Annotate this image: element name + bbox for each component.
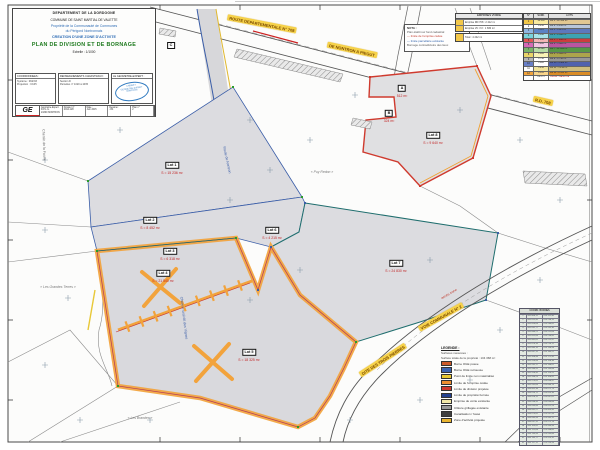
- commune-title: COMMUNE DE SAINT MARTIAL DE VALETTE: [13, 18, 155, 22]
- coords-line: Projection : CC45: [17, 83, 54, 86]
- parcel-label-box: B: [385, 110, 393, 117]
- borne-number: 28: [520, 425, 527, 428]
- borne-y: 474 251,08: [543, 331, 559, 334]
- cadastre-box-body: Section DParcelles n° 1020 à 1035: [59, 79, 108, 88]
- parcel-label-box: Lot 6: [265, 227, 279, 234]
- borne-y: 473 997,56: [543, 413, 559, 416]
- parcel-label-box: C: [167, 42, 175, 49]
- road-area-text: Emprise VC n°2 : 1 830 m²: [464, 27, 495, 30]
- borne-y: 474 280,62: [543, 323, 559, 326]
- lot-name-cell: Lot 2 - 8 230 m²: [549, 25, 590, 29]
- parcel-label: A512 m²: [397, 76, 408, 98]
- title-block-footer: GE Géomètre-Expert D.P.L.G.24300 NONTRON…: [15, 105, 155, 117]
- borne-y: 474 120,25: [543, 372, 559, 375]
- parcel-label-box: Lot 5: [242, 349, 256, 356]
- borne-y: 474 059,36: [543, 392, 559, 395]
- parcel-label: Lot 2S = 8 452 m²: [140, 208, 160, 230]
- footer-cell-line: Juin 2015: [87, 109, 107, 112]
- lot-surface-cell: 8 230: [534, 25, 549, 29]
- department-title: DEPARTEMENT DE LA DORDOGNE: [13, 11, 155, 15]
- lieu-dit-label: « Les Brandes »: [128, 416, 153, 420]
- borne-number: 20: [520, 392, 527, 395]
- borne-number: 5: [520, 331, 527, 334]
- borne-y: 474 009,90: [543, 409, 559, 412]
- parcel-area-text: 324 m²: [384, 119, 395, 123]
- owner-line-1: Propriété de la Communauté de Communes: [13, 24, 155, 28]
- parcel-label-box: Lot 2: [143, 217, 157, 224]
- lot-number-cell: 10: [524, 62, 534, 66]
- color-table-row: 84 895Lot 8 - 4 895 m²: [524, 52, 590, 57]
- borne-y: 473 972,78: [543, 421, 559, 424]
- borne-x: 495 944,55: [527, 368, 543, 371]
- borne-number: 18: [520, 384, 527, 387]
- borne-x: 495 897,15: [527, 351, 543, 354]
- parcel-area-text: S = 8 452 m²: [140, 226, 160, 230]
- legend-swatch: [441, 393, 452, 398]
- coords-box: COORDONNEES : Système : RGF93Projection …: [15, 73, 56, 104]
- road-area-text: Emprise RD 708 : 2 412 m²: [464, 21, 495, 24]
- parcel-label-box: Lot 8: [426, 132, 440, 139]
- col-number: N°: [524, 14, 534, 18]
- lot-number-cell: 8: [524, 53, 534, 57]
- borne-x: 495 932,17: [527, 364, 543, 367]
- lot-number-cell: 6: [524, 43, 534, 47]
- coordinate-row: 12495 920,83474 158,36: [520, 359, 559, 363]
- legend-swatch: [441, 418, 452, 423]
- parcel-area-text: S = 4 215 m²: [262, 236, 282, 240]
- lot-name-cell: TOTAL : 89 875 m²: [549, 76, 590, 80]
- coordinate-row: 14495 944,55474 133,68: [520, 367, 559, 371]
- coordinate-row: 32496 157,12473 910,98: [520, 441, 559, 445]
- coordinate-row: 31496 145,77473 923,32: [520, 436, 559, 440]
- lot-name-cell: Lot 8 - 4 895 m²: [549, 53, 590, 57]
- borne-number: 15: [520, 372, 527, 375]
- borne-y: 474 196,58: [543, 347, 559, 350]
- parcel-label: Lot 5S = 18 325 m²: [238, 340, 259, 362]
- borne-x: 495 920,83: [527, 360, 543, 363]
- legend-label: Emprise de voirie existante: [454, 399, 490, 403]
- legend-note-2: Surface totale de la propriété : 104 368…: [441, 356, 525, 360]
- title-block: DEPARTEMENT DE LA DORDOGNE COMMUNE DE SA…: [12, 8, 156, 117]
- borne-y: 473 923,32: [543, 437, 559, 440]
- color-table-row: 96 740Lot 9 - 6 740 m²: [524, 57, 590, 62]
- footer-cell: Dossier n°2014-128: [63, 106, 86, 116]
- color-table-row: 36 115Lot 3 - 6 115 m²: [524, 28, 590, 33]
- color-table-row: 711 020Lot 7 - 11 020 m²: [524, 47, 590, 52]
- borne-number: 32: [520, 442, 527, 445]
- color-swatch: [456, 26, 464, 31]
- borne-number: 21: [520, 396, 527, 399]
- legend-note-1: Surfaces mesurées :: [441, 351, 525, 355]
- parcel-color-table: N° SURF. LOTS 112 450Lot 1 - 12 450 m²28…: [523, 13, 591, 81]
- borne-x: 495 956,90: [527, 372, 543, 375]
- legend-title: LEGENDE :: [441, 346, 525, 350]
- coordinate-row: 22496 038,50474 034,68: [520, 400, 559, 404]
- parcel-label-box: Lot 3: [163, 248, 177, 255]
- legend-swatch: [441, 386, 452, 391]
- borne-x: 496 002,38: [527, 388, 543, 391]
- borne-x: 495 874,39: [527, 343, 543, 346]
- borne-number: 6: [520, 335, 527, 338]
- borne-y: 474 108,81: [543, 376, 559, 379]
- borne-y: 474 047,02: [543, 396, 559, 399]
- road-area-row: Emprise VC n°2 : 1 830 m²: [456, 25, 522, 31]
- coordinate-row: 13495 932,17474 146,02: [520, 363, 559, 367]
- col-lots: LOTS: [549, 14, 590, 18]
- surveyor-logo: GE: [16, 106, 40, 116]
- color-table-row: 115 210Lot 11 - 5 210 m²: [524, 66, 590, 71]
- coordinate-row: 10495 897,15474 183,22: [520, 350, 559, 354]
- lieu-dit-label: « Puy Redon »: [311, 170, 333, 174]
- legend-label: Limite de propriété bornée: [454, 393, 489, 397]
- borne-y: 474 096,47: [543, 380, 559, 383]
- parcel-label-box: Lot 7: [389, 260, 403, 267]
- note-line: Bornage contradictoire des lieux: [407, 43, 467, 47]
- lot-surface-cell: 5 480: [534, 43, 549, 47]
- borne-x: 495 812,45: [527, 319, 543, 322]
- lot-number-cell: 2: [524, 25, 534, 29]
- lot-surface-cell: 7 260: [534, 39, 549, 43]
- lieu-dit-label: « Les Grandes Terres »: [40, 285, 76, 289]
- lot-surface-cell: 89 875: [534, 76, 549, 80]
- legend-swatch: [441, 367, 452, 372]
- owner-line-2: du Périgord Nontronnais: [13, 29, 155, 33]
- cadastre-line: Parcelles n° 1020 à 1035: [60, 83, 107, 86]
- parcel-area-text: S = 15 236 m²: [161, 171, 182, 175]
- lot-number-cell: 5: [524, 39, 534, 43]
- borne-number: 13: [520, 364, 527, 367]
- parcel-label: B324 m²: [384, 101, 395, 123]
- borne-x: 496 038,50: [527, 401, 543, 404]
- borne-x: 496 085,96: [527, 417, 543, 420]
- legend-label: Canalisation / fossé: [454, 412, 480, 416]
- lot-surface-cell: 6 740: [534, 58, 549, 62]
- borne-number: 11: [520, 356, 527, 359]
- borne-number: 30: [520, 433, 527, 436]
- scale-label: Echelle : 1/1000: [13, 50, 155, 54]
- color-swatch: [456, 20, 464, 25]
- coordinate-row: 19496 002,38474 071,79: [520, 387, 559, 391]
- borne-x: 496 061,27: [527, 409, 543, 412]
- legend-label: Clôture grillagée existante: [454, 406, 489, 410]
- borne-y: 474 034,68: [543, 401, 559, 404]
- lot-name-cell: Lot 1 - 12 450 m²: [549, 20, 590, 24]
- color-table-row: 65 480Lot 6 - 5 480 m²: [524, 42, 590, 47]
- borne-number: 14: [520, 368, 527, 371]
- parcel-label: Lot 7S = 24 830 m²: [385, 251, 406, 273]
- footer-cell: Plan n°2: [131, 106, 154, 116]
- borne-x: 495 820,08: [527, 323, 543, 326]
- lot-name-cell: Lot 4 - 9 840 m²: [549, 34, 590, 38]
- parcel-area-text: S = 24 830 m²: [385, 269, 406, 273]
- coordinate-row: 3495 820,08474 280,62: [520, 322, 559, 326]
- borne-y: 474 236,85: [543, 335, 559, 338]
- borne-x: 495 806,12: [527, 315, 543, 318]
- legend-label: Limite de l'emprise cédée: [454, 381, 488, 385]
- lot-surface-cell: 3 980: [534, 62, 549, 66]
- lot-name-cell: Lot 7 - 11 020 m²: [549, 48, 590, 52]
- footer-cell: Géomètre-Expert D.P.L.G.24300 NONTRON: [40, 106, 63, 116]
- legend-item: Limite de division projetée: [441, 386, 525, 391]
- borne-x: 496 133,43: [527, 433, 543, 436]
- surveyor-box-header: LE GEOMETRE-EXPERT :: [112, 74, 152, 79]
- lot-number-cell: 3: [524, 29, 534, 33]
- coords-box-body: Système : RGF93Projection : CC45: [16, 79, 55, 88]
- borne-x: 496 121,08: [527, 429, 543, 432]
- borne-number: 19: [520, 388, 527, 391]
- legend-item: Clôture grillagée existante: [441, 405, 525, 410]
- legend-label: Point de limite non matérialisé: [454, 374, 494, 378]
- color-table-row: 128 655Lot 12 - 8 655 m²: [524, 71, 590, 76]
- legend-item: Limite de l'emprise cédée: [441, 380, 525, 385]
- lot-surface-cell: 12 450: [534, 20, 549, 24]
- lot-name-cell: Lot 3 - 6 115 m²: [549, 29, 590, 33]
- borne-number: 27: [520, 421, 527, 424]
- lot-number-cell: 11: [524, 67, 534, 71]
- col-surface: SURF.: [534, 14, 549, 18]
- borne-number: 16: [520, 376, 527, 379]
- parcel-label: Lot 8S = 9 640 m²: [423, 123, 443, 145]
- coordinate-row: 5495 840,21474 251,08: [520, 330, 559, 334]
- borne-y: 473 960,44: [543, 425, 559, 428]
- road-area-total: Total : 4 242 m²: [455, 33, 523, 42]
- coordinate-row: 28496 109,65473 960,44: [520, 424, 559, 428]
- color-swatch: [456, 34, 464, 41]
- road-area-text: Total : 4 242 m²: [464, 36, 482, 39]
- borne-number: 3: [520, 323, 527, 326]
- borne-number: 10: [520, 351, 527, 354]
- parcel-area-text: S = 9 640 m²: [423, 141, 443, 145]
- parcel-label: Lot 4S = 21 540 m²: [152, 261, 173, 283]
- legend-swatch: [441, 411, 452, 416]
- borne-y: 473 935,66: [543, 433, 559, 436]
- borne-number: 17: [520, 380, 527, 383]
- legend-label: Limite de division projetée: [454, 387, 489, 391]
- borne-y: 474 022,24: [543, 405, 559, 408]
- coordinate-row: 30496 133,43473 935,66: [520, 432, 559, 436]
- borne-number: 4: [520, 327, 527, 330]
- lot-surface-cell: 11 020: [534, 48, 549, 52]
- coordinate-row: 23496 049,84474 022,24: [520, 404, 559, 408]
- footer-cell-line: 2: [132, 109, 152, 112]
- legend-swatch: [441, 405, 452, 410]
- borne-y: 474 071,79: [543, 388, 559, 391]
- coordinate-row: 29496 121,08473 948,00: [520, 428, 559, 432]
- coordinate-row: 18495 991,06474 084,13: [520, 383, 559, 387]
- borne-number: 9: [520, 347, 527, 350]
- coordinate-row: 1495 806,12474 312,40: [520, 314, 559, 318]
- parcel-area-text: S = 18 325 m²: [238, 358, 259, 362]
- footer-cell: Dessiné :J.M.: [108, 106, 131, 116]
- footer-cell-line: 24300 NONTRON: [41, 112, 61, 115]
- coordinate-row: 11495 908,48474 171,90: [520, 355, 559, 359]
- coordinate-row: 8495 874,39474 210,11: [520, 342, 559, 346]
- lot-number-cell: 9: [524, 58, 534, 62]
- color-table-row: 89 875TOTAL : 89 875 m²: [524, 75, 590, 80]
- borne-y: 474 146,02: [543, 364, 559, 367]
- borne-x: 496 145,77: [527, 437, 543, 440]
- borne-x: 496 097,31: [527, 421, 543, 424]
- lot-name-cell: Lot 5 - 7 260 m²: [549, 39, 590, 43]
- lot-name-cell: Lot 11 - 5 210 m²: [549, 67, 590, 71]
- lot-name-cell: Lot 12 - 8 655 m²: [549, 72, 590, 76]
- color-table-row: 103 980Lot 10 - 3 980 m²: [524, 61, 590, 66]
- coordinate-row: 16495 968,24474 108,81: [520, 375, 559, 379]
- lot-number-cell: 12: [524, 72, 534, 76]
- parcel-area-text: S = 21 540 m²: [152, 279, 173, 283]
- parcel-label: C: [167, 33, 175, 51]
- parcel-label: Lot 1S = 15 236 m²: [161, 153, 182, 175]
- borne-number: 2: [520, 319, 527, 322]
- borne-y: 474 133,68: [543, 368, 559, 371]
- color-table-row: 112 450Lot 1 - 12 450 m²: [524, 19, 590, 24]
- legend-item: Point de limite non matérialisé: [441, 374, 525, 379]
- legend-swatch: [441, 374, 452, 379]
- borne-y: 474 222,47: [543, 339, 559, 342]
- coordinate-row: 26496 085,96473 985,12: [520, 416, 559, 420]
- lot-number-cell: 1: [524, 20, 534, 24]
- borne-number: 25: [520, 413, 527, 416]
- borne-y: 474 210,11: [543, 343, 559, 346]
- legend-item: Limite de propriété bornée: [441, 393, 525, 398]
- borne-x: 495 968,24: [527, 376, 543, 379]
- legend-item: Emprise de voirie existante: [441, 399, 525, 404]
- borne-y: 474 312,40: [543, 315, 559, 318]
- footer-cell-line: J.M.: [109, 109, 129, 112]
- cadastre-box: RENSEIGNEMENTS CADASTRAUX : Section DPar…: [58, 73, 109, 104]
- coordinate-row: 27496 097,31473 972,78: [520, 420, 559, 424]
- coordinate-row: 6495 852,64474 236,85: [520, 334, 559, 338]
- borne-y: 474 183,22: [543, 351, 559, 354]
- borne-number: 8: [520, 343, 527, 346]
- legend-item: Borne OGE posée: [441, 361, 525, 366]
- borne-number: 29: [520, 429, 527, 432]
- coordinate-row: 21496 026,15474 047,02: [520, 395, 559, 399]
- borne-x: 496 157,12: [527, 442, 543, 445]
- coordinate-row: 2495 812,45474 298,15: [520, 318, 559, 322]
- parcel-label-box: Lot 4: [156, 270, 170, 277]
- lot-surface-cell: 4 895: [534, 53, 549, 57]
- borne-x: 496 014,72: [527, 392, 543, 395]
- legend-label: Zone d'activité projetée: [454, 418, 485, 422]
- borne-x: 495 831,77: [527, 327, 543, 330]
- borne-number: 12: [520, 360, 527, 363]
- legend-item: Borne OGE retrouvée: [441, 367, 525, 372]
- borne-number: 23: [520, 405, 527, 408]
- coordinate-row: 9495 885,70474 196,58: [520, 346, 559, 350]
- lot-number-cell: 4: [524, 34, 534, 38]
- coordinate-row: 24496 061,27474 009,90: [520, 408, 559, 412]
- borne-y: 473 948,00: [543, 429, 559, 432]
- legend-label: Borne OGE retrouvée: [454, 368, 483, 372]
- lot-number-cell: [524, 76, 534, 80]
- coordinate-row: 20496 014,72474 059,36: [520, 391, 559, 395]
- borne-x: 495 991,06: [527, 384, 543, 387]
- borne-x: 495 852,64: [527, 335, 543, 338]
- borne-x: 495 908,48: [527, 356, 543, 359]
- coordinate-row: 4495 831,77474 265,30: [520, 326, 559, 330]
- lot-name-cell: Lot 9 - 6 740 m²: [549, 58, 590, 62]
- borne-x: 495 885,70: [527, 347, 543, 350]
- scanned-survey-plan: DEPARTEMENT DE LA DORDOGNE COMMUNE DE SA…: [0, 0, 600, 450]
- borne-x: 496 049,84: [527, 405, 543, 408]
- road-area-table: EMPRISES VOIRIE Emprise RD 708 : 2 412 m…: [455, 13, 523, 32]
- borne-number: 22: [520, 401, 527, 404]
- borne-y: 473 985,12: [543, 417, 559, 420]
- lot-surface-cell: 9 840: [534, 34, 549, 38]
- color-table-row: 28 230Lot 2 - 8 230 m²: [524, 24, 590, 29]
- borne-number: 26: [520, 417, 527, 420]
- legend-item: Zone d'activité projetée: [441, 418, 525, 423]
- project-title: CREATION D'UNE ZONE D'ACTIVITE: [13, 35, 155, 39]
- borne-x: 495 840,21: [527, 331, 543, 334]
- lot-number-cell: 7: [524, 48, 534, 52]
- borne-y: 473 910,98: [543, 442, 559, 445]
- coordinate-row: 7495 861,02474 222,47: [520, 338, 559, 342]
- legend-swatch: [441, 399, 452, 404]
- borne-y: 474 084,13: [543, 384, 559, 387]
- parcel-label: Lot 3S = 6 318 m²: [160, 239, 180, 261]
- coordinate-table: COORD. BORNES 1495 806,12474 312,402495 …: [519, 308, 560, 446]
- coordinate-row: 25496 073,62473 997,56: [520, 412, 559, 416]
- borne-x: 496 073,62: [527, 413, 543, 416]
- footer-cell-line: 2014-128: [64, 109, 84, 112]
- color-table-row: 49 840Lot 4 - 9 840 m²: [524, 33, 590, 38]
- borne-number: 31: [520, 437, 527, 440]
- legend: LEGENDE : Surfaces mesurées : Surface to…: [441, 346, 525, 423]
- borne-x: 495 861,02: [527, 339, 543, 342]
- parcel-label-box: A: [398, 85, 406, 92]
- borne-y: 474 171,90: [543, 356, 559, 359]
- borne-number: 24: [520, 409, 527, 412]
- borne-number: 1: [520, 315, 527, 318]
- parcel-area-text: 512 m²: [397, 94, 408, 98]
- surveyor-box: LE GEOMETRE-EXPERT : CABINETGEOMETRE-EXP…: [111, 73, 153, 104]
- parcel-label-box: Lot 1: [165, 162, 179, 169]
- legend-item: Canalisation / fossé: [441, 411, 525, 416]
- coordinate-row: 17495 979,61474 096,47: [520, 379, 559, 383]
- borne-number: 7: [520, 339, 527, 342]
- lot-name-cell: Lot 10 - 3 980 m²: [549, 62, 590, 66]
- surveyor-stamp: CABINETGEOMETRE-EXPERTNONTRON: [114, 80, 150, 104]
- borne-x: 496 026,15: [527, 396, 543, 399]
- lot-surface-cell: 5 210: [534, 67, 549, 71]
- borne-y: 474 298,15: [543, 319, 559, 322]
- borne-y: 474 265,30: [543, 327, 559, 330]
- parcel-label: Lot 6S = 4 215 m²: [262, 218, 282, 240]
- footer-cell: Date :Juin 2015: [86, 106, 109, 116]
- borne-x: 496 109,65: [527, 425, 543, 428]
- legend-swatch: [441, 361, 452, 366]
- plan-title: PLAN DE DIVISION ET DE BORNAGE: [13, 42, 155, 48]
- borne-x: 495 979,61: [527, 380, 543, 383]
- borne-y: 474 158,36: [543, 360, 559, 363]
- color-table-row: 57 260Lot 5 - 7 260 m²: [524, 38, 590, 43]
- lot-name-cell: Lot 6 - 5 480 m²: [549, 43, 590, 47]
- coordinate-row: 15495 956,90474 120,25: [520, 371, 559, 375]
- lot-surface-cell: 6 115: [534, 29, 549, 33]
- legend-label: Borne OGE posée: [454, 362, 479, 366]
- legend-swatch: [441, 380, 452, 385]
- lot-surface-cell: 8 655: [534, 72, 549, 76]
